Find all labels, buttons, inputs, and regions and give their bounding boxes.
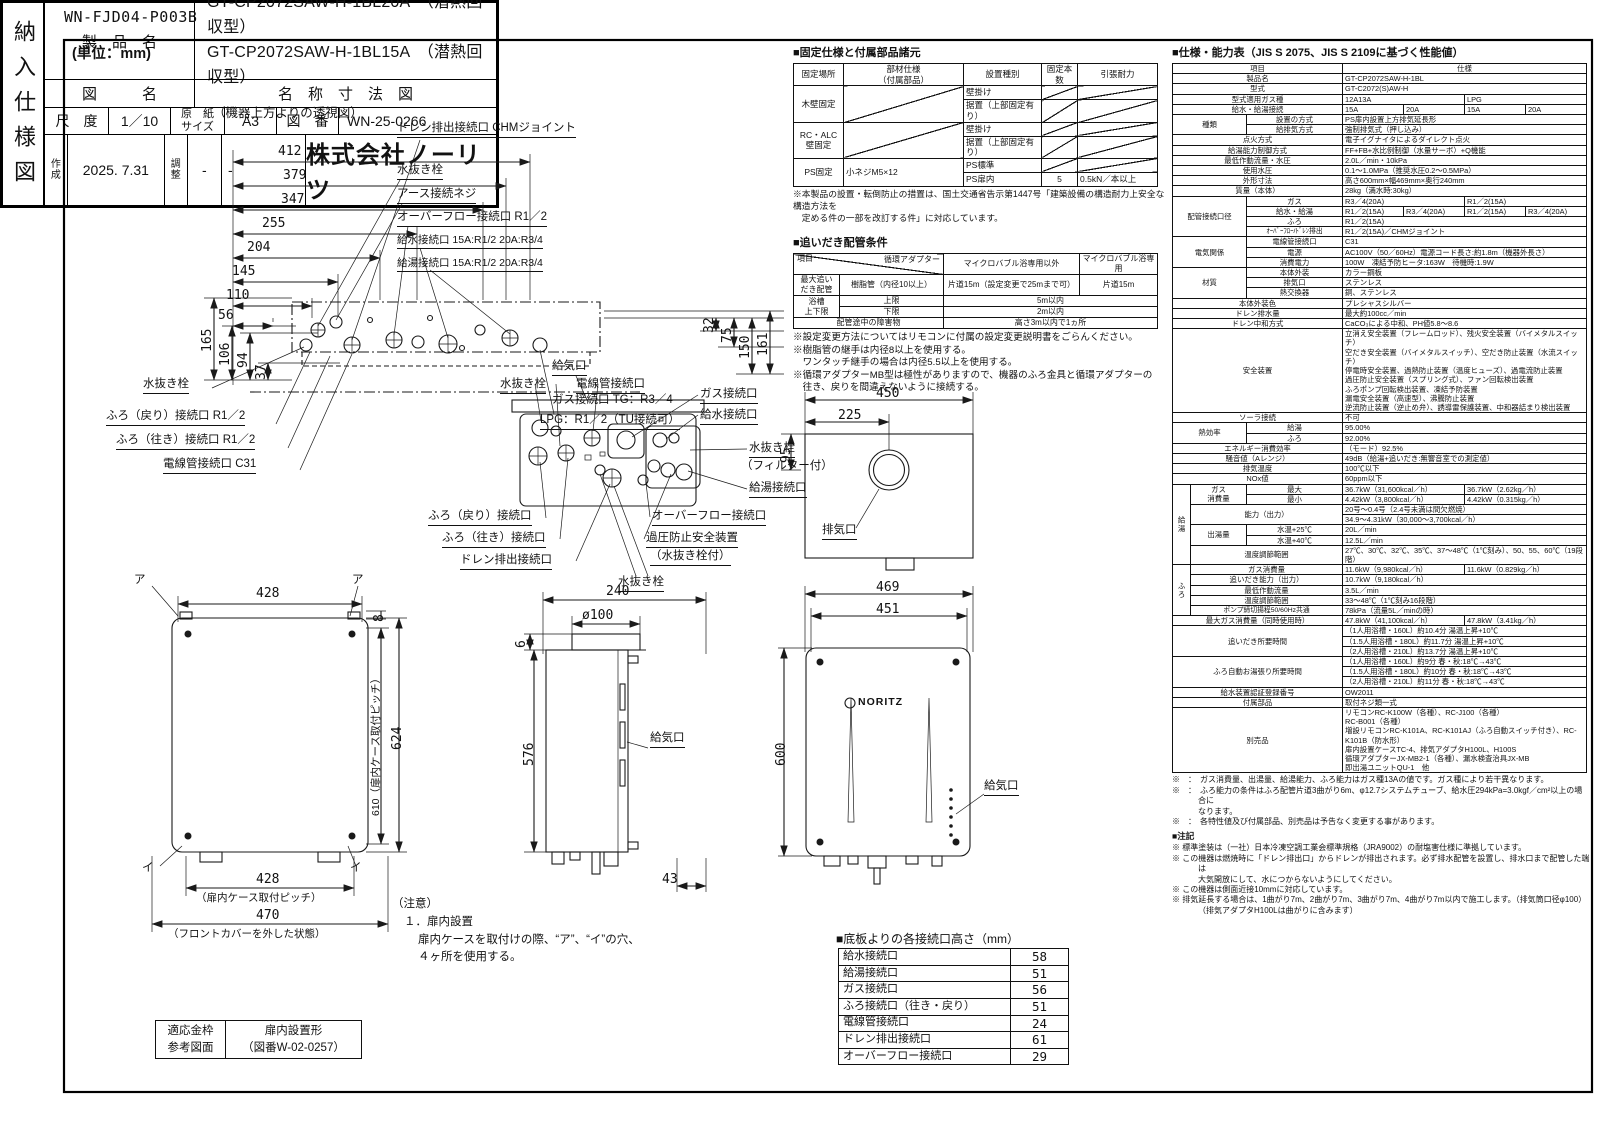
table-cell: （1人用浴槽・160L）約9分 春・秋:18℃→43℃ [1343,656,1587,666]
label-furo-return: ふろ（戻り）接続口 R1／2 [106,410,245,426]
frame-label: 適応金枠 参考図面 [156,1021,226,1059]
label-overflow: オーバーフロー接続口 [652,510,766,526]
table-cell: 60ppm以下 [1343,474,1587,484]
table-row: 電線管接続口24 [839,1015,1069,1032]
table-cell: 壁掛け [964,122,1042,136]
dim-576: 576 [522,743,538,766]
note-line: ※ 排気延長する場合は、1曲がり7m、2曲がり7m、3曲がり7m、4曲がり7m以… [1172,895,1590,916]
dim-150: 150 [738,336,754,359]
dim-145: 145 [232,264,255,280]
table-cell: AC100V（50／60Hz）電源コード長さ:約1.8m（機器外長さ） [1343,247,1587,257]
table-cell: 下限 [840,307,944,318]
dim-412: 412 [278,144,301,160]
table-row: 適応金枠 参考図面 扉内設置形 （図番W-02-0257） [156,1021,362,1059]
table-cell: 木壁固定 [794,86,844,122]
table-row: ドレン排出接続口61 [839,1032,1069,1049]
dim-470: 470 [256,908,279,924]
table-cell: 2m以内 [944,307,1158,318]
table-row: 型式GT-C2072(S)AW-H [1173,84,1587,94]
table-cell: 電線管接続口 [1247,237,1343,247]
table-cell: 給湯 [1173,484,1191,565]
table-cell: 立消え安全装置（フレームロッド）、残火安全装置（バイメタルスイッチ） 空だき安全… [1343,329,1587,413]
label-water-inlet: 給水接続口 [700,409,758,425]
table-cell: 0.1～1.0MPa（推奨水圧0.2～0.5MPa） [1343,166,1587,176]
table-cell: 20A [1526,104,1587,114]
label-water-inlet: 給水接続口 15A:R1/2 20A:R3/4 [397,234,543,249]
dim-255: 255 [262,216,285,232]
table-cell: 11.6kW（0.829kg／h） [1465,565,1587,575]
dim-32: 32 [702,317,718,333]
table-cell: LPG [1465,94,1587,104]
table-cell: ソーラ接続 [1173,413,1343,423]
table-row: ドレン排水量最大約100cc／min [1173,308,1587,318]
table-cell: 58 [1011,949,1069,966]
table-cell: マイクロバブル浴専用以外 [944,254,1080,275]
table-cell: 36.7kW（2.62kg／h） [1465,484,1587,494]
table-cell: 最大 [1247,484,1343,494]
table-cell: 29 [1011,1048,1069,1065]
table-cell: （1.5人用浴槽・180L）約11.7分 湯温上昇+10℃ [1343,636,1587,646]
label-relief-valve-2: （水抜き栓付） [650,550,731,566]
table-cell: PS固定 [794,158,844,186]
table-row: 外形寸法高さ600mm×幅469mm×奥行240mm [1173,176,1587,186]
table-row: 最低作動流量・水圧2.0L／min・10kPa [1173,155,1587,165]
table-cell: R3／4(20A) [1404,206,1465,216]
table-cell: 項目 [1173,64,1343,74]
table-row: 給水接続口58 [839,949,1069,966]
table-cell: 壁掛け [964,86,1042,100]
table-cell: 給湯接続口 [839,965,1011,982]
table-cell [844,86,964,122]
dim-469: 469 [876,580,899,596]
table-cell: 24 [1011,1015,1069,1032]
table-row: 安全装置立消え安全装置（フレームロッド）、残火安全装置（バイメタルスイッチ） 空… [1173,329,1587,413]
remarks-notes: ※ 標準塗装は（一社）日本冷凍空調工業会標準規格（JRA9002）の耐塩害仕様に… [1172,843,1590,916]
table-row: 付属部品取付ネジ類一式 [1173,697,1587,707]
table-cell: R3／4(20A) [1526,206,1587,216]
dim-240: 240 [606,584,629,600]
piping-table-title: ■追いだき配管条件 [793,234,1167,250]
table-cell: 安全装置 [1173,329,1343,413]
table-cell: GT-C2072(S)AW-H [1343,84,1587,94]
table-cell: FF+FB+水比例制御（水量サーボ）+Q機能 [1343,145,1587,155]
table-row: 木壁固定壁掛け [794,86,1158,100]
spec-table: 項目仕様製品名GT-CP2072SAW-H-1BL型式GT-C2072(S)AW… [1172,63,1587,773]
fixing-table: 固定場所部材仕様 （付属部品）設置種別固定本数引張耐力木壁固定壁掛け据置（上部固… [793,63,1158,187]
table-cell: 47.8kW（41,100kcal／h） [1343,616,1465,626]
table-row: エネルギー消費効率（モード）92.5% [1173,443,1587,453]
table-row: 最大ガス消費量（同時使用時）47.8kW（41,100kcal／h）47.8kW… [1173,616,1587,626]
table-cell: OW2011 [1343,687,1587,697]
table-row: 給水・給湯接続15A20A15A20A [1173,104,1587,114]
table-row: 固定場所部材仕様 （付属部品）設置種別固定本数引張耐力 [794,64,1158,86]
table-cell: 0.5kN／本以上 [1078,172,1158,186]
table-cell: 12.5L／min [1343,535,1587,545]
mark-a-right: ア [352,574,364,588]
note-line: 往き、戻りを間違えないように接続する。 [793,382,1167,394]
table-cell: 据置（上部固定有り） [964,136,1042,158]
dim-56: 56 [218,308,234,324]
label-overflow: オーバーフロー接続口 R1／2 [397,211,547,227]
table-cell: 製品名 [1173,74,1343,84]
table-cell: プレシャスシルバー [1343,298,1587,308]
dim-379: 379 [283,168,306,184]
table-cell: 12A13A [1343,94,1465,104]
table-cell: ドレン排水量 [1173,308,1343,318]
table-cell: ふろ [1247,433,1343,443]
table-cell: 100W 凍結予防ヒータ:163W 待機時:1.9W [1343,257,1587,267]
dim-225: 225 [838,408,861,424]
table-row: 最低作動流量3.5L／min [1173,585,1587,595]
table-cell: ドレン排出接続口 [839,1032,1011,1049]
unit-note: (単位：mm) [72,46,151,63]
table-cell: 電気関係 [1173,237,1247,268]
table-row: 給湯接続口51 [839,965,1069,982]
table-row: 熱効率給湯95.00% [1173,423,1587,433]
table-cell: 付属部品 [1173,697,1343,707]
label-drain-plug: 水抜き栓 [500,378,546,394]
table-cell: 78kPa（流量5L／minの時） [1343,605,1587,615]
label-furo-return: ふろ（戻り）接続口 [428,510,532,526]
table-row: 質量（本体）28kg（満水時:30kg） [1173,186,1587,196]
note-line: ※ 標準塗装は（一社）日本冷凍空調工業会標準規格（JRA9002）の耐塩害仕様に… [1172,843,1590,853]
table-row: ポンプ締切揚程50/60Hz共通78kPa（流量5L／minの時） [1173,605,1587,615]
front-view-left [152,586,407,932]
table-cell: オーバーフロー接続口 [839,1048,1011,1065]
notice-title: （注意） [392,896,640,914]
label-intake-front: 給気口 [984,780,1019,796]
table-cell: 部材仕様 （付属部品） [844,64,964,86]
label-gas-lpg: LPG：R1／2（TU接続可） [540,414,680,430]
table-cell [1078,122,1158,136]
table-cell: RC・ALC 壁固定 [794,122,844,158]
piping-notes: ※設定変更方法についてはリモコンに付属の設定変更説明書をごらんください。※樹脂管… [793,332,1167,394]
dim-428-bottom: 428 [256,872,279,888]
table-row: 電気関係電線管接続口C31 [1173,237,1587,247]
table-row: ふろ自動お湯張り所要時間（1人用浴槽・160L）約9分 春・秋:18℃→43℃ [1173,656,1587,666]
table-cell [1042,86,1078,100]
frame-table: 適応金枠 参考図面 扉内設置形 （図番W-02-0257） [155,1020,362,1059]
table-cell: 電子イグナイタによるダイレクト点火 [1343,135,1587,145]
spec-column: ■仕様・能力表（JIS S 2075、JIS S 2109に基づく性能値） 項目… [1172,44,1590,916]
table-row: 温度調節範囲27℃、30℃、32℃、35℃、37～48℃（1℃刻み）、50、55… [1173,545,1587,564]
table-cell: ガス消費量 [1191,565,1343,575]
table-cell: 51 [1011,998,1069,1015]
table-cell: 15A [1343,104,1404,114]
table-cell: 36.7kW（31,600kcal／h） [1343,484,1465,494]
label-relief-valve: 過圧防止安全装置 [646,532,738,548]
table-row: ガス接続口56 [839,982,1069,999]
label-hotwater-outlet: 給湯接続口 15A:R1/2 20A:R3/4 [397,257,543,272]
mark-i-left: イ [142,862,154,876]
table-cell: 仕様 [1343,64,1587,74]
table-cell: 温度調節範囲 [1191,545,1343,564]
table-cell: 4.42kW（0.315kg／h） [1465,494,1587,504]
table-row: 材質本体外装カラー鋼板 [1173,268,1587,278]
notice-block: （注意） １．扉内設置 扉内ケースを取付けの際、“ア”、“イ”の穴、 ４ヶ所を使… [392,896,640,967]
topview-title: （機器上方よりの透視図） [213,106,363,121]
table-cell: 92.00% [1343,433,1587,443]
table-cell: 34.9～4.31kW（30,000～3,700kcal／h） [1343,515,1587,525]
table-cell: 能力（出力） [1191,504,1343,524]
table-cell: PS扉内設置上方排気延長形 [1343,115,1587,125]
heights-table: 給水接続口58給湯接続口51ガス接続口56ふろ接続口（往き・戻り）51電線管接続… [838,948,1069,1065]
dim-106: 106 [218,343,234,366]
table-cell: 5 [1042,172,1078,186]
dim-204: 204 [247,240,270,256]
table-cell: （1.5人用浴槽・180L）約10分 春・秋:18℃→43℃ [1343,667,1587,677]
notice-line: ４ヶ所を使用する。 [392,949,640,967]
label-drain-plug: 水抜き栓 [397,164,443,180]
table-cell: 固定本数 [1042,64,1078,86]
table-cell: 設置種別 [964,64,1042,86]
table-row: 浴槽 上下限上限5m以内 [794,296,1158,307]
dim-451: 451 [876,602,899,618]
heights-table-wrap: 給水接続口58給湯接続口51ガス接続口56ふろ接続口（往き・戻り）51電線管接続… [838,948,1069,1065]
table-cell: 100℃以下 [1343,464,1587,474]
fixing-note: ※本製品の設置・転倒防止の措置は、国土交通省告示第1447号「建築設備の構造耐力… [793,189,1167,225]
table-cell: 給湯能力制御方式 [1173,145,1343,155]
table-cell: ふろ自動お湯張り所要時間 [1173,656,1343,687]
heights-table-title: ■底板よりの各接続口高さ（mm） [836,930,1019,947]
table-cell: 2.0L／min・10kPa [1343,155,1587,165]
table-row: 能力（出力）20号～0.4号（2.4号未満は間欠燃焼） [1173,504,1587,514]
mark-a-left: ア [134,574,146,588]
table-row: 配管途中の障害物高さ3m以内で1ヵ所 [794,318,1158,329]
table-cell: 熱交換器 [1247,288,1343,298]
label-furo-supply: ふろ（往き）接続口 [442,532,546,548]
dim-165: 165 [200,329,216,352]
label-gas: ガス接続口 [700,388,758,404]
table-cell: ふろ接続口（往き・戻り） [839,998,1011,1015]
table-cell: 高さ3m以内で1ヵ所 [944,318,1158,329]
table-cell: 型式 [1173,84,1343,94]
table-cell: 28kg（満水時:30kg） [1343,186,1587,196]
table-cell: NOx値 [1173,474,1343,484]
drawing-code: WN-FJD04-P003B [64,8,197,26]
note-line: ワンタッチ継手の場合は内径5.5以上を使用する。 [793,357,1167,369]
table-cell: 27℃、30℃、32℃、35℃、37～48℃（1℃刻み）、50、55、60℃（1… [1343,545,1587,564]
table-cell: 高さ600mm×幅469mm×奥行240mm [1343,176,1587,186]
table-cell: 61 [1011,1032,1069,1049]
table-cell: 樹脂管（内径10以上） [840,275,944,296]
table-cell: 33～48℃（1℃刻み16段階） [1343,595,1587,605]
note-line: ※循環アダプターMB型は極性がありますので、機器のふろ金具と循環アダプターの [793,370,1167,382]
dim-phi100: ø100 [582,608,613,624]
table-cell: 設置の方式 [1247,115,1343,125]
table-cell: 15A [1465,104,1526,114]
table-cell: 最小 [1247,494,1343,504]
table-cell: 材質 [1173,268,1247,299]
label-gas-tg: ガス接続口 TG：R3／4 [552,394,673,408]
mark-i-right: イ [350,862,362,876]
table-cell [1078,136,1158,158]
table-cell: 最低作動流量・水圧 [1173,155,1343,165]
table-cell: 引張耐力 [1078,64,1158,86]
table-cell: 給水装置認証登録番号 [1173,687,1343,697]
table-cell: （1人用浴槽・160L）約10.4分 湯温上昇+10℃ [1343,626,1587,636]
middle-column: ■固定仕様と付属部品諸元 固定場所部材仕様 （付属部品）設置種別固定本数引張耐力… [793,44,1167,395]
label-drain-joint: ドレン排出接続口 CHMジョイント [397,122,576,138]
noritz-logo: NORITZ [858,696,903,709]
table-cell: （2人用浴槽・210L）約11分 春・秋:18℃→43℃ [1343,677,1587,687]
table-row: 製品名GT-CP2072SAW-H-1BL [1173,74,1587,84]
label-conduit: 電線管接続口 C31 [163,458,256,474]
table-cell [844,122,964,158]
table-cell: マイクロバブル浴専用 [1080,254,1158,275]
table-cell: 小ネジM5×12 [844,158,964,186]
table-cell: R1／2(15A)／CHMジョイント [1343,227,1587,237]
table-row: ドレン中和方式CaCO₃による中和、PH値5.8～8.6 [1173,319,1587,329]
table-cell: 水温+25℃ [1247,525,1343,535]
table-cell: 給排気方式 [1247,125,1343,135]
table-cell: 不可 [1343,413,1587,423]
table-cell: 給水・給湯接続 [1173,104,1343,114]
note-line: ※ ： ふろ能力の条件はふろ配管片道3曲がり6m、φ12.7システムチューブ、給… [1172,786,1590,817]
table-cell: 最低作動流量 [1191,585,1343,595]
table-cell: ふろ [1173,565,1191,616]
table-cell: 最大約100cc／min [1343,308,1587,318]
frame-table-wrap: 適応金枠 参考図面 扉内設置形 （図番W-02-0257） [155,1020,362,1059]
table-row: 給水装置認証登録番号OW2011 [1173,687,1587,697]
table-cell: 銅、ステンレス [1343,288,1587,298]
table-row: NOx値60ppm以下 [1173,474,1587,484]
table-cell: 47.8kW（3.41kg／h） [1465,616,1587,626]
table-cell: 電線管接続口 [839,1015,1011,1032]
dim-624: 624 [390,727,406,750]
table-cell: 種類 [1173,115,1247,135]
table-cell: 給湯 [1247,423,1343,433]
note-line: ※ ： ガス消費量、出湯量、給湯能力、ふろ能力はガス種13Aの値です。ガス種によ… [1172,775,1590,785]
table-cell: リモコンRC-K100W（各種）、RC-J100（各種） RC-B001（各種）… [1343,708,1587,773]
table-cell: 配管接続口径 [1173,196,1247,237]
table-row: ふろ接続口（往き・戻り）51 [839,998,1069,1015]
table-cell: 給水・給湯 [1247,206,1343,216]
table-row: ふろガス消費量11.6kW（9,980kcal／h）11.6kW（0.829kg… [1173,565,1587,575]
front-view-right [778,586,984,884]
label-intake: 給気口 [552,360,587,376]
table-cell: R1／2(15A) [1465,206,1526,216]
table-cell: 外形寸法 [1173,176,1343,186]
table-cell: GT-CP2072SAW-H-1BL [1343,74,1587,84]
top-perspective-view [204,140,784,470]
table-cell: 20L／min [1343,525,1587,535]
table-cell: 11.6kW（9,980kcal／h） [1343,565,1465,575]
table-cell: 51 [1011,965,1069,982]
table-cell: 水温+40℃ [1247,535,1343,545]
piping-table: 項目循環アダプターマイクロバブル浴専用以外マイクロバブル浴専用最大追い だき配管… [793,253,1158,329]
table-cell: PS標準 [964,158,1042,172]
table-row: RC・ALC 壁固定壁掛け [794,122,1158,136]
table-cell: 10.7kW（9,180kcal／h） [1343,575,1587,585]
table-row: 別売品リモコンRC-K100W（各種）、RC-J100（各種） RC-B001（… [1173,708,1587,773]
table-cell: 片道15m（設定変更で25mまで可） [944,275,1080,296]
table-cell: （モード）92.5% [1343,443,1587,453]
table-cell: 項目循環アダプター [794,254,944,275]
table-row: 最大追い だき配管樹脂管（内径10以上）片道15m（設定変更で25mまで可）片道… [794,275,1158,296]
dim-428-top: 428 [256,586,279,602]
table-cell: 消費電力 [1247,257,1343,267]
table-cell: 上限 [840,296,944,307]
spec-notes: ※ ： ガス消費量、出湯量、給湯能力、ふろ能力はガス種13Aの値です。ガス種によ… [1172,775,1590,827]
table-cell: 出湯量 [1191,525,1247,545]
table-row: オーバーフロー接続口29 [839,1048,1069,1065]
table-cell: CaCO₃による中和、PH値5.8～8.6 [1343,319,1587,329]
dim-600: 600 [774,743,790,766]
table-cell: ｵｰﾊﾞｰﾌﾛｰ/ﾄﾞﾚﾝ排出 [1247,227,1343,237]
table-cell: 追いだき所要時間 [1173,626,1343,657]
table-row: 本体外装色プレシャスシルバー [1173,298,1587,308]
table-cell: R1／2(15A) [1343,217,1587,227]
table-row: PS固定小ネジM5×12PS標準 [794,158,1158,172]
label-hotwater: 給湯接続口 [749,482,807,498]
table-cell: 点火方式 [1173,135,1343,145]
table-cell: （2人用浴槽・210L）約13.7分 湯温上昇+10℃ [1343,646,1587,656]
table-cell: 片道15m [1080,275,1158,296]
table-cell: ガス接続口 [839,982,1011,999]
table-cell: ガス [1247,196,1343,206]
table-row: 追いだき所要時間（1人用浴槽・160L）約10.4分 湯温上昇+10℃ [1173,626,1587,636]
table-row: 使用水圧0.1～1.0MPa（推奨水圧0.2～0.5MPa） [1173,166,1587,176]
table-row: 型式適用ガス種12A13ALPG [1173,94,1587,104]
table-cell [1042,122,1078,136]
table-cell: 56 [1011,982,1069,999]
dim-110: 110 [226,288,249,304]
table-cell: ドレン中和方式 [1173,319,1343,329]
table-cell: 固定場所 [794,64,844,86]
table-row: 給湯能力制御方式FF+FB+水比例制御（水量サーボ）+Q機能 [1173,145,1587,155]
table-cell: 5m以内 [944,296,1158,307]
table-cell: 別売品 [1173,708,1343,773]
table-cell: R1／2(15A) [1343,206,1404,216]
notice-line: １．扉内設置 [392,914,640,932]
table-cell: 電源 [1247,247,1343,257]
dim-347: 347 [281,192,304,208]
note-line: ※樹脂管の継手は内径8以上を使用する。 [793,345,1167,357]
dim-610-pitch: 610（扉内ケース取付ピッチ） [370,673,383,816]
note-line: ※ この機器は側面近接10mmに対応しています。 [1172,885,1590,895]
table-row: 給湯ガス 消費量最大36.7kW（31,600kcal／h）36.7kW（2.6… [1173,484,1587,494]
table-cell: 95.00% [1343,423,1587,433]
table-cell: 最大ガス消費量（同時使用時） [1173,616,1343,626]
table-cell: 強制排気式（押し込み） [1343,125,1587,135]
dim-37: 37 [254,364,270,380]
note-line: ※設定変更方法についてはリモコンに付属の設定変更説明書をごらんください。 [793,332,1167,344]
label-drain-plug-2: 水抜き栓 [143,378,189,394]
table-cell [1078,158,1158,172]
table-row: 排気温度100℃以下 [1173,464,1587,474]
dim-470-note: （フロントカバーを外した状態） [168,928,326,941]
frame-value: 扉内設置形 （図番W-02-0257） [226,1021,362,1059]
table-cell [1078,100,1158,122]
table-cell: カラー鋼板 [1343,268,1587,278]
fixing-table-title: ■固定仕様と付属部品諸元 [793,44,1167,60]
table-cell: 排気温度 [1173,464,1343,474]
label-intake-side: 給気口 [650,732,685,748]
table-cell [1042,100,1078,122]
table-cell: 熱効率 [1173,423,1247,443]
table-cell: ふろ [1247,217,1343,227]
table-cell: 本体外装 [1247,268,1343,278]
table-cell: ステンレス [1343,278,1587,288]
table-cell: 給水接続口 [839,949,1011,966]
dim-428-note: （扉内ケース取付ピッチ） [196,892,321,905]
table-cell [1042,136,1078,158]
table-cell: 質量（本体） [1173,186,1343,196]
table-cell: 型式適用ガス種 [1173,94,1343,104]
label-exhaust: 排気口 [822,524,857,540]
remarks-title: ■注記 [1172,830,1590,842]
